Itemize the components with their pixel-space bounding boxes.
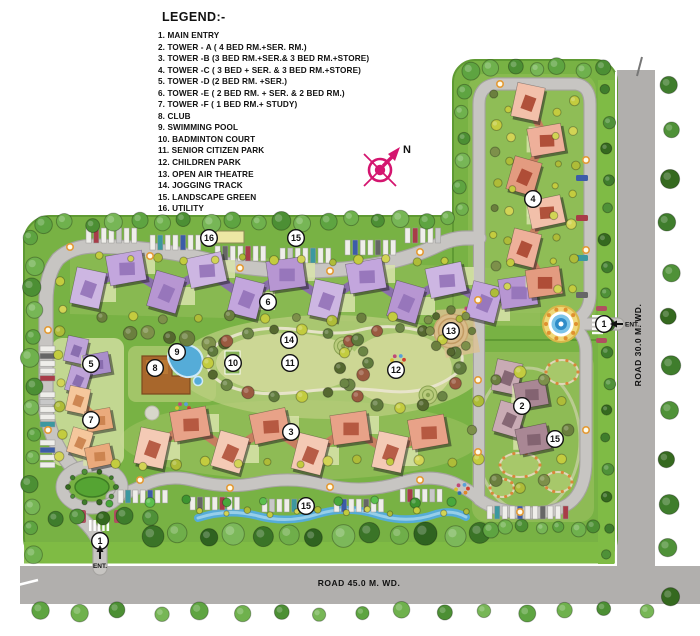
streetlight-icon	[583, 247, 589, 253]
marker-number: 5	[88, 359, 93, 369]
tree	[569, 285, 577, 293]
tree	[569, 190, 576, 197]
tree	[65, 484, 70, 489]
marker-number: 1	[601, 319, 606, 329]
tree	[445, 526, 466, 547]
tree	[601, 492, 612, 503]
tree	[414, 522, 437, 545]
map-marker-6: 6	[260, 294, 277, 311]
tree	[264, 458, 271, 465]
tree	[167, 523, 187, 543]
streetlight-icon	[417, 477, 423, 483]
tree	[320, 213, 337, 230]
tree	[552, 183, 558, 189]
tree	[505, 207, 514, 216]
legend-item: 1. MAIN ENTRY	[158, 30, 369, 42]
tree	[431, 341, 441, 351]
streetlight-icon	[327, 268, 333, 274]
tree	[506, 157, 514, 165]
streetlight-icon	[475, 297, 481, 303]
tree	[530, 63, 543, 76]
tree	[353, 455, 362, 464]
tree	[334, 362, 345, 373]
tree	[24, 521, 38, 535]
tree	[660, 76, 677, 93]
tree	[109, 494, 114, 499]
tree	[221, 335, 233, 347]
tree	[447, 497, 456, 506]
tree	[48, 511, 63, 526]
tree	[267, 512, 273, 518]
marker-number: 10	[228, 358, 238, 368]
tree	[208, 346, 218, 356]
tree	[274, 605, 289, 620]
map-marker-8: 8	[147, 360, 164, 377]
tree	[56, 213, 72, 229]
legend-item: 14. JOGGING TRACK	[158, 180, 369, 192]
tree	[260, 314, 269, 323]
tree	[296, 391, 308, 403]
tree	[200, 456, 210, 466]
tree	[571, 522, 586, 537]
tree	[343, 509, 349, 515]
tree	[553, 108, 561, 116]
tree	[386, 458, 393, 465]
tree	[490, 474, 503, 487]
tree	[297, 461, 304, 468]
tree	[143, 510, 159, 526]
legend-item: 12. CHILDREN PARK	[158, 157, 369, 169]
marker-number: 6	[265, 297, 270, 307]
road-45m-label: ROAD 45.0 M. WD.	[318, 578, 401, 588]
map-marker-13: 13	[443, 323, 460, 340]
tree	[296, 324, 307, 335]
marker-number: 12	[391, 365, 401, 375]
legend-item: 6. TOWER -E ( 2 BED RM. + SER. & 2 BED R…	[158, 88, 369, 100]
tree	[660, 308, 676, 324]
tree	[490, 231, 497, 238]
tree	[601, 262, 612, 273]
tree	[550, 258, 556, 264]
tree	[462, 62, 480, 80]
tree	[508, 59, 523, 74]
tree	[553, 234, 560, 241]
tree	[27, 428, 40, 441]
compass-rose: N	[352, 136, 426, 200]
tree	[359, 522, 380, 543]
fountain-roundabout	[543, 306, 579, 342]
streetlight-icon	[227, 485, 233, 491]
tree	[356, 607, 369, 620]
tree	[603, 175, 614, 186]
tree	[601, 433, 610, 442]
tree	[270, 325, 279, 334]
streetlight-icon	[497, 81, 503, 87]
tree	[145, 497, 155, 507]
tree	[548, 58, 565, 75]
tree	[54, 452, 64, 462]
tree	[602, 463, 614, 475]
tree	[438, 391, 448, 401]
marker-number: 8	[152, 363, 157, 373]
legend-item: 4. TOWER -C ( 3 BED + SER. & 3 BED RM.+S…	[158, 65, 369, 77]
tree	[598, 233, 611, 246]
tree	[351, 334, 363, 346]
marker-number: 15	[301, 501, 311, 511]
streetlight-icon	[475, 377, 481, 383]
map-marker-1: 1	[596, 316, 613, 333]
tree	[54, 350, 63, 359]
tree	[242, 328, 253, 339]
tree	[239, 254, 245, 260]
map-marker-16: 16	[201, 230, 218, 247]
tree	[23, 278, 41, 296]
map-marker-4: 4	[525, 191, 542, 208]
map-marker-15: 15	[288, 230, 305, 247]
tree	[26, 330, 41, 345]
map-marker-12: 12	[388, 362, 405, 379]
tree	[197, 508, 203, 514]
legend-item: 11. SENIOR CITIZEN PARK	[158, 145, 369, 157]
tree	[358, 347, 368, 357]
tree	[202, 357, 213, 368]
tree	[661, 588, 679, 606]
tree	[327, 315, 338, 326]
tree	[504, 237, 512, 245]
tree	[509, 186, 516, 193]
tree	[597, 602, 611, 616]
compass-n-label: N	[403, 144, 411, 156]
tree	[453, 180, 467, 194]
tree	[388, 312, 398, 322]
tree	[109, 602, 125, 618]
tree	[21, 475, 38, 492]
tree	[601, 405, 611, 415]
marker-number: 16	[204, 233, 214, 243]
tree	[35, 216, 53, 234]
legend-item: 10. BADMINTON COURT	[158, 134, 369, 146]
tree	[660, 169, 679, 188]
tree	[605, 524, 614, 533]
tree	[20, 348, 39, 367]
map-marker-5: 5	[83, 356, 100, 373]
tree	[494, 179, 502, 187]
tree	[362, 357, 373, 368]
tree	[357, 313, 367, 323]
tree	[455, 105, 468, 118]
tree	[129, 312, 138, 321]
tree	[461, 341, 470, 350]
tree	[426, 327, 435, 336]
tree	[163, 332, 175, 344]
marker-number: 7	[88, 415, 93, 425]
tree	[323, 329, 333, 339]
tree	[601, 288, 611, 298]
tree	[253, 527, 273, 547]
tree	[552, 132, 559, 139]
tree	[334, 497, 343, 506]
tree	[211, 256, 219, 264]
tree	[491, 375, 501, 385]
tree	[448, 458, 457, 467]
tree	[242, 386, 255, 399]
tree	[572, 161, 581, 170]
tree	[24, 499, 40, 515]
tree	[259, 497, 266, 504]
tree	[604, 378, 616, 390]
tree	[357, 368, 370, 381]
tree	[658, 213, 676, 231]
map-marker-14: 14	[281, 332, 298, 349]
tree	[441, 257, 448, 264]
tree	[235, 605, 251, 621]
tree	[569, 127, 578, 136]
tree	[658, 451, 674, 467]
tree	[441, 211, 455, 225]
tree	[601, 550, 610, 559]
marker-number: 15	[550, 434, 560, 444]
tree	[555, 161, 561, 167]
tree	[106, 500, 113, 507]
tree	[473, 395, 484, 406]
tree	[109, 476, 113, 480]
tree	[179, 331, 194, 346]
streetlight-icon	[45, 327, 51, 333]
tree	[59, 305, 67, 313]
tree	[312, 608, 325, 621]
tree	[603, 203, 613, 213]
tree	[194, 314, 202, 322]
tree	[222, 498, 231, 507]
tree	[155, 607, 169, 621]
tree	[515, 483, 526, 494]
streetlight-icon	[137, 477, 143, 483]
tree	[221, 379, 233, 391]
tree	[566, 219, 576, 229]
marker-number: 9	[174, 347, 179, 357]
tree	[659, 495, 679, 515]
tree	[491, 204, 498, 211]
streetlight-icon	[45, 427, 51, 433]
tree	[82, 469, 88, 475]
tree	[507, 259, 515, 267]
legend-item: 7. TOWER -F ( 1 BED RM.+ STUDY)	[158, 99, 369, 111]
legend-item: 9. SWIMMING POOL	[158, 122, 369, 134]
tree	[491, 120, 502, 131]
tree	[449, 377, 461, 389]
tree	[371, 214, 384, 227]
tree	[600, 84, 610, 94]
tree	[562, 424, 574, 436]
traffic-island	[75, 477, 109, 497]
tree	[123, 326, 137, 340]
tree	[371, 496, 379, 504]
tree	[364, 506, 370, 512]
tree	[462, 312, 470, 320]
tree	[23, 230, 37, 244]
tree	[371, 399, 384, 412]
tree	[553, 521, 564, 532]
tree	[458, 132, 470, 144]
tree	[390, 526, 408, 544]
marker-number: 11	[285, 358, 295, 368]
tree	[432, 312, 439, 319]
map-marker-2: 2	[514, 398, 531, 415]
tree	[413, 258, 421, 266]
tree	[304, 529, 322, 547]
tree	[413, 507, 420, 514]
tree	[661, 401, 679, 419]
streetlight-icon	[147, 253, 153, 259]
tree	[515, 519, 528, 532]
tree	[142, 525, 164, 547]
tree	[323, 388, 333, 398]
tree	[224, 310, 235, 321]
tree	[70, 475, 75, 480]
tree	[596, 60, 611, 75]
tree	[570, 96, 580, 106]
legend-title: LEGEND:-	[162, 10, 369, 25]
tree	[640, 604, 654, 618]
tree	[180, 257, 188, 265]
tree	[26, 451, 39, 464]
tree	[661, 356, 680, 375]
tree	[483, 522, 499, 538]
tree	[208, 370, 217, 379]
tree	[514, 366, 526, 378]
tree	[382, 254, 390, 262]
marker-number: 1	[97, 536, 102, 546]
tree	[456, 203, 468, 215]
tree	[279, 525, 299, 545]
tree	[454, 362, 467, 375]
tree	[128, 256, 134, 262]
marker-number: 2	[519, 401, 524, 411]
tree	[32, 602, 50, 620]
streetlight-icon	[583, 427, 589, 433]
tree	[437, 605, 452, 620]
tree	[505, 106, 512, 113]
streetlight-icon	[475, 449, 481, 455]
tree	[97, 312, 107, 322]
tree	[603, 117, 615, 129]
tree	[182, 495, 191, 504]
tree	[70, 494, 74, 498]
legend-item: 3. TOWER -B (3 BED RM.+SER.& 3 BED RM.+S…	[158, 53, 369, 65]
tree	[498, 520, 512, 534]
tree	[70, 509, 85, 524]
tree	[576, 63, 591, 78]
map-marker-9: 9	[169, 344, 186, 361]
entry-text: ENT.	[93, 563, 107, 570]
tree	[601, 143, 612, 154]
tree	[224, 511, 229, 516]
tree	[82, 500, 87, 505]
tree	[468, 327, 476, 335]
tree	[538, 474, 550, 486]
tree	[424, 316, 432, 324]
legend-item: 5. TOWER -D (2 BED RM. +SER.)	[158, 76, 369, 88]
tree	[447, 306, 456, 315]
legend-item: 2. TOWER - A ( 4 BED RM.+SER. RM.)	[158, 42, 369, 54]
tree	[663, 264, 681, 282]
tree	[491, 261, 501, 271]
map-marker-10: 10	[225, 355, 242, 372]
tree	[441, 510, 447, 516]
tree	[86, 219, 100, 233]
tree	[490, 147, 500, 157]
marker-number: 13	[446, 326, 456, 336]
streetlight-icon	[417, 249, 423, 255]
tree	[447, 348, 455, 356]
map-marker-7: 7	[83, 412, 100, 429]
road-30m-label: ROAD 30.0 M. WD.	[633, 304, 643, 387]
marker-number: 4	[530, 194, 535, 204]
tree	[557, 602, 572, 617]
tree	[414, 455, 424, 465]
tree	[54, 326, 65, 337]
tree	[297, 255, 305, 263]
tree	[234, 459, 242, 467]
tree	[538, 374, 549, 385]
marker-number: 14	[284, 335, 294, 345]
tree	[464, 509, 470, 515]
tree	[504, 283, 511, 290]
tree	[417, 399, 429, 411]
tree	[97, 499, 103, 505]
tree	[395, 323, 404, 332]
tree	[141, 326, 155, 340]
tree	[557, 454, 567, 464]
tree	[323, 456, 333, 466]
streetlight-icon	[67, 244, 73, 250]
tree	[154, 215, 170, 231]
marker-number: 15	[291, 233, 301, 243]
tree	[340, 379, 349, 388]
tree	[314, 506, 321, 513]
compass: N	[352, 136, 426, 200]
legend-item: 16. UTILITY	[158, 203, 369, 215]
tree	[467, 425, 476, 434]
tree	[332, 525, 355, 548]
tree	[139, 462, 147, 470]
tree	[419, 214, 434, 229]
streetlight-icon	[237, 265, 243, 271]
tree	[222, 523, 244, 545]
tree	[57, 379, 65, 387]
tree	[477, 604, 491, 618]
tree	[550, 211, 558, 219]
tree	[132, 212, 148, 228]
tree	[96, 511, 110, 525]
tree	[587, 520, 600, 533]
tree	[252, 215, 267, 230]
map-marker-11: 11	[282, 355, 299, 372]
tree	[200, 529, 217, 546]
tree	[554, 285, 562, 293]
tree	[410, 498, 421, 509]
legend-item: 13. OPEN AIR THEATRE	[158, 169, 369, 181]
tree	[54, 401, 65, 412]
streetlight-icon	[517, 509, 523, 515]
tree	[570, 254, 579, 263]
tree	[111, 459, 120, 468]
tree	[507, 133, 516, 142]
tree	[269, 256, 278, 265]
tree	[329, 259, 336, 266]
tree	[490, 90, 498, 98]
tree	[371, 325, 382, 336]
